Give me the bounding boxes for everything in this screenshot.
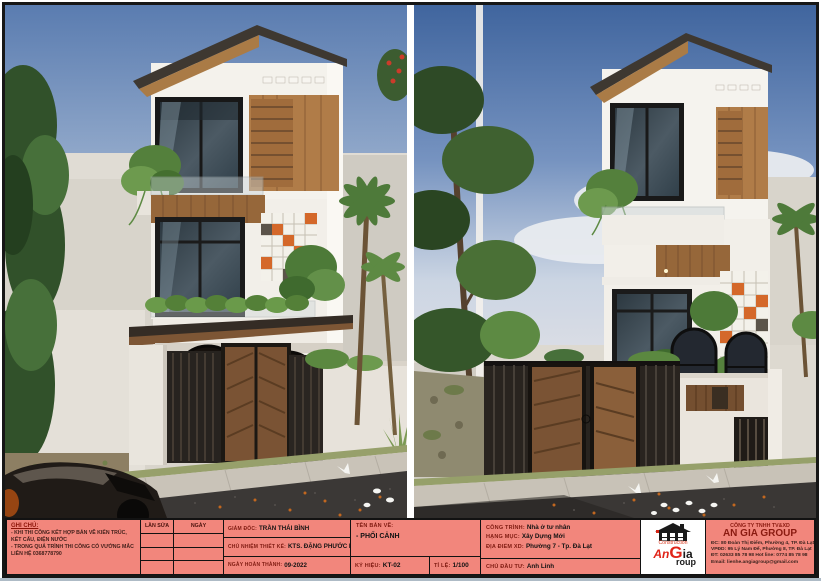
drawing-name: - PHỐI CẢNH [356,533,475,540]
drawing-code-label: KÝ HIỆU: [355,563,381,569]
project-category-row: HẠNG MỤC: Xây Dựng Mới [486,532,635,541]
drawing-code: KT-02 [383,562,401,569]
company-phone: ĐT: 02633 85 78 98 Hot line: 0774 85 78 … [711,553,809,559]
drawing-scale: 1/100 [452,562,468,569]
revision-header-row: LẦN SỬA NGÀY [141,520,223,534]
company-contact: ĐC: 80 Đoàn Thị Điểm, Phường 4, TP. Đà L… [711,541,809,567]
louver-panel-floor3 [716,107,768,199]
revision-col-header: LẦN SỬA [141,520,174,533]
drawing-sheet: GHI CHÚ: - KHI THI CÔNG KẾT HỢP BẢN VẼ K… [0,0,821,581]
company-logo: Construction AnGia roup [641,520,706,574]
project-location-label: ĐỊA ĐIỂM XD: [486,543,524,551]
project-work-row: CÔNG TRÌNH: Nhà ở tư nhân [486,523,635,532]
date-col-header: NGÀY [174,520,223,533]
design-lead-label: CHỦ NHIỆM THIẾT KẾ: [228,544,286,550]
project-work: Nhà ở tư nhân [527,523,570,532]
logo-roup: roup [676,558,696,567]
drawing-name-cell: TÊN BẢN VẼ: - PHỐI CẢNH [351,520,480,556]
project-info: CÔNG TRÌNH: Nhà ở tư nhân HẠNG MỤC: Xây … [481,520,640,558]
drawing-name-label: TÊN BẢN VẼ: [356,523,475,529]
notes-heading: GHI CHÚ: [11,523,136,529]
management-section: GIÁM ĐỐC: TRẦN THÁI BÌNH CHỦ NHIỆM THIẾT… [224,520,351,574]
note-line: - KHI THI CÔNG KẾT HỢP BẢN VẼ KIẾN TRÚC,… [11,530,136,544]
project-client-row: CHỦ ĐẦU TƯ: Anh Linh [481,558,640,574]
fence [129,345,407,465]
completion-row: NGÀY HOÀN THÀNH: 09-2022 [224,557,350,574]
drawing-scale-cell: TỈ LỆ: 1/100 [430,557,480,574]
render-left-scene [5,5,407,518]
revision-empty-row [141,534,223,548]
director-row: GIÁM ĐỐC: TRẦN THÁI BÌNH [224,520,350,538]
render-left-perspective [5,5,407,518]
project-work-label: CÔNG TRÌNH: [486,524,525,532]
revision-empty-row [141,548,223,562]
house [578,33,772,391]
drawing-section: TÊN BẢN VẼ: - PHỐI CẢNH KÝ HIỆU: KT-02 T… [351,520,481,574]
project-client: Anh Linh [527,563,554,570]
company-section: CÔNG TY TNHH TV&XD AN GIA GROUP ĐC: 80 Đ… [706,520,814,574]
notes-section: GHI CHÚ: - KHI THI CÔNG KẾT HỢP BẢN VẼ K… [7,520,141,574]
director-label: GIÁM ĐỐC: [228,526,257,532]
project-location-row: ĐỊA ĐIỂM XD: Phường 7 - Tp. Đà Lạt [486,542,635,551]
glass-rail-floor3 [151,177,263,195]
completion-label: NGÀY HOÀN THÀNH: [228,562,282,568]
white-parapet [602,215,724,245]
project-category: Xây Dựng Mới [522,532,565,541]
design-lead-row: CHỦ NHIỆM THIẾT KẾ: KTS. ĐẶNG PHƯỚC KHAN… [224,538,350,556]
design-lead-name: KTS. ĐẶNG PHƯỚC KHANG [288,543,351,550]
project-client-label: CHỦ ĐẦU TƯ: [486,564,525,570]
house-logo-icon [653,522,693,541]
render-right-perspective [414,5,816,518]
project-category-label: HẠNG MỤC: [486,533,520,541]
drawing-scale-label: TỈ LỆ: [434,563,450,569]
project-location: Phường 7 - Tp. Đà Lạt [526,542,592,551]
company-address-1: ĐC: 80 Đoàn Thị Điểm, Phường 4, TP. Đà L… [711,541,809,547]
drawing-meta-row: KÝ HIỆU: KT-02 TỈ LỆ: 1/100 [351,556,480,574]
render-right-scene [414,5,816,518]
logo-an: An [653,547,669,561]
drawing-code-cell: KÝ HIỆU: KT-02 [351,557,430,574]
ceiling-light [664,269,668,273]
mailbox [712,387,728,409]
gate-door-2 [592,365,638,475]
render-area [5,5,816,518]
company-email: Email: lienhe.angiagroup@gmail.com [711,560,809,566]
revision-empty-row [141,561,223,574]
project-section: CÔNG TRÌNH: Nhà ở tư nhân HẠNG MỤC: Xây … [481,520,641,574]
vent-slits [263,77,324,83]
completion-date: 09-2022 [284,562,307,569]
revision-table: LẦN SỬA NGÀY [141,520,224,574]
company-name: AN GIA GROUP [711,529,809,540]
director-name: TRẦN THÁI BÌNH [259,525,309,532]
title-block: GHI CHÚ: - KHI THI CÔNG KẾT HỢP BẢN VẼ K… [5,518,816,576]
note-line: - TRONG QUÁ TRÌNH THI CÔNG CÓ VƯỚNG MẮC … [11,544,136,558]
